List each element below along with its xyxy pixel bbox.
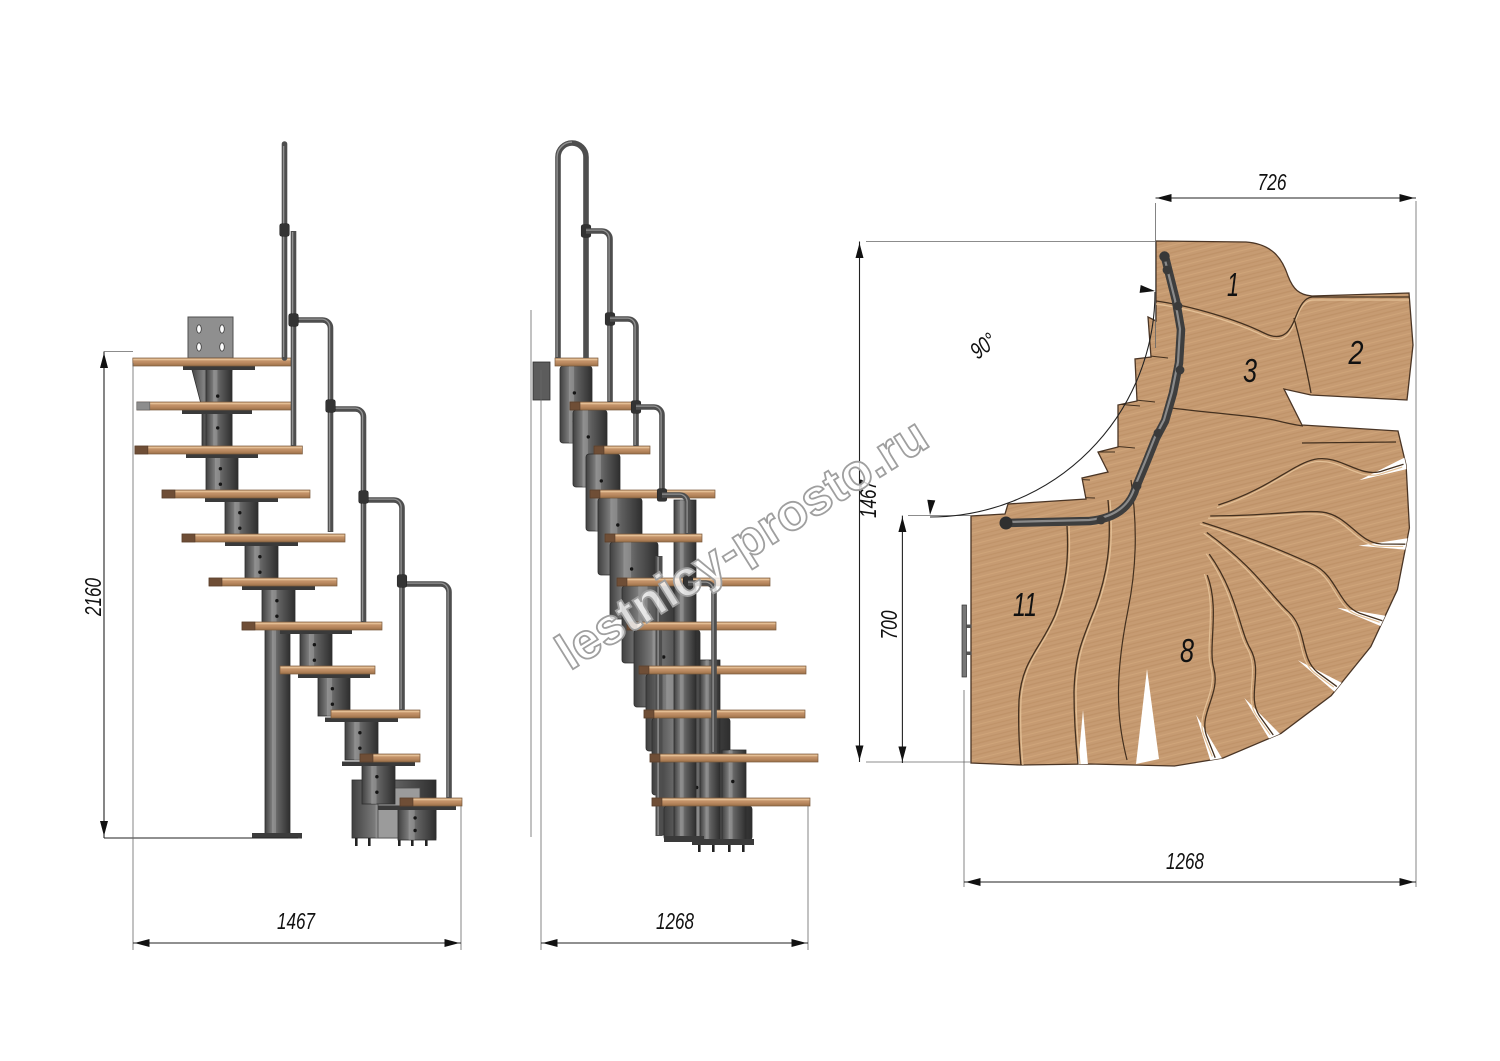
svg-text:11: 11 <box>1013 586 1037 623</box>
svg-text:726: 726 <box>1258 169 1287 195</box>
svg-text:700: 700 <box>876 610 902 639</box>
svg-text:2160: 2160 <box>80 578 106 617</box>
svg-text:8: 8 <box>1180 632 1194 669</box>
svg-text:2: 2 <box>1348 334 1364 371</box>
svg-text:1467: 1467 <box>277 908 316 934</box>
svg-text:1268: 1268 <box>1166 848 1204 874</box>
svg-text:1: 1 <box>1227 266 1239 303</box>
svg-text:3: 3 <box>1243 352 1257 389</box>
svg-text:1268: 1268 <box>656 908 694 934</box>
